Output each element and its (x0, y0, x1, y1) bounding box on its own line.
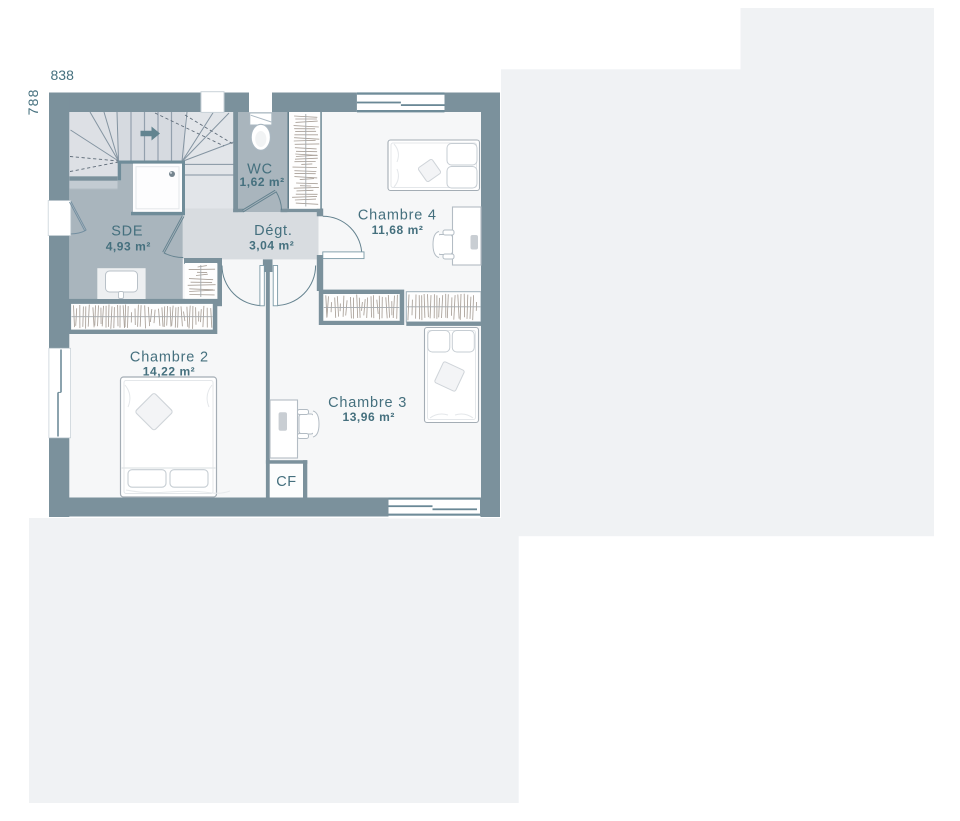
svg-text:4,93 m²: 4,93 m² (106, 239, 151, 253)
svg-text:Chambre 3: Chambre 3 (328, 395, 407, 411)
svg-text:Chambre 2: Chambre 2 (130, 350, 209, 366)
svg-text:Chambre 4: Chambre 4 (358, 208, 437, 224)
svg-text:838: 838 (51, 67, 75, 83)
svg-text:14,22 m²: 14,22 m² (143, 365, 195, 379)
svg-text:788: 788 (25, 88, 41, 115)
svg-text:Dégt.: Dégt. (254, 223, 293, 239)
svg-text:SDE: SDE (111, 223, 143, 239)
svg-text:11,68 m²: 11,68 m² (372, 223, 424, 237)
svg-text:3,04 m²: 3,04 m² (249, 239, 294, 253)
svg-text:1,62 m²: 1,62 m² (239, 175, 284, 189)
svg-text:CF: CF (276, 474, 296, 490)
svg-text:13,96 m²: 13,96 m² (342, 410, 394, 424)
